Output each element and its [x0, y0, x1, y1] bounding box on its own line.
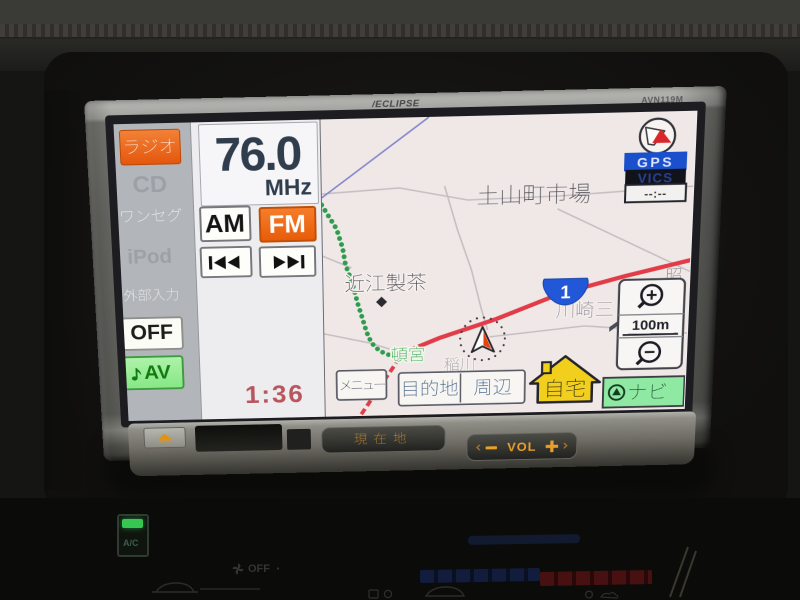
svg-text:--:--: --:-- [644, 187, 667, 201]
svg-text:100m: 100m [632, 317, 670, 333]
svg-text:1: 1 [560, 283, 571, 303]
svg-text:GPS: GPS [637, 155, 675, 171]
svg-text:VOL: VOL [507, 440, 537, 454]
